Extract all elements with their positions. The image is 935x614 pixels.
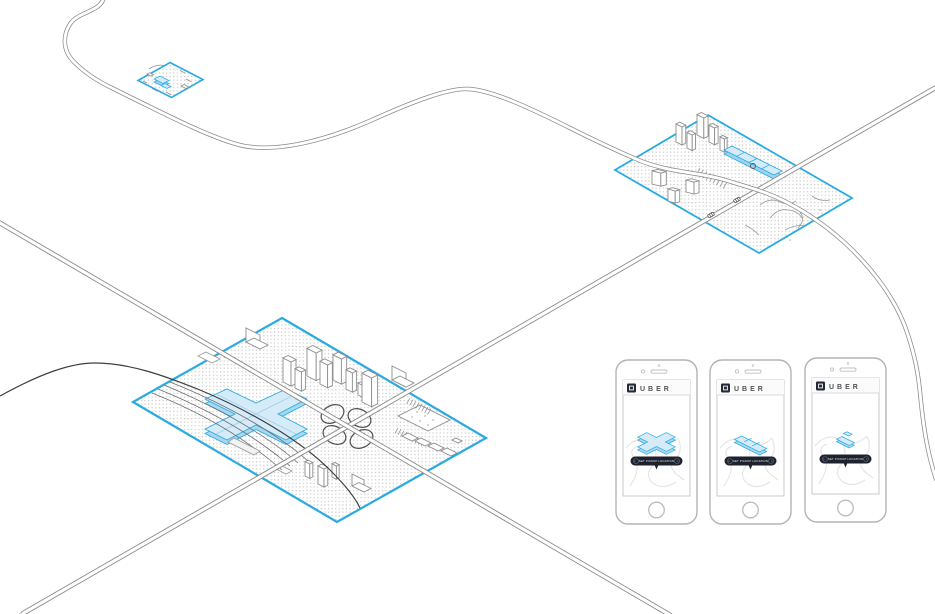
uber-logo-icon (721, 384, 730, 393)
uber-logo-icon (816, 382, 825, 391)
map-tile-city-large (133, 318, 486, 522)
phone-mockup-3: UBER ‹ › SET PICKUP LOCATION (805, 358, 886, 522)
road-network (0, 0, 935, 614)
home-button[interactable] (838, 500, 854, 516)
brand-wordmark: UBER (734, 386, 766, 393)
pickup-button-label: SET PICKUP LOCATION (828, 457, 863, 461)
uber-isometric-illustration: UBER ‹ › SET PICKUP LOCATION UBER (0, 0, 935, 614)
home-button[interactable] (649, 502, 665, 518)
uber-logo-icon (627, 384, 636, 393)
pickup-button-label: SET PICKUP LOCATION (639, 459, 674, 463)
phone-screen (717, 380, 784, 496)
phone-screen (812, 378, 879, 494)
home-button[interactable] (743, 502, 759, 518)
brand-wordmark: UBER (640, 386, 672, 393)
pickup-button-label: SET PICKUP LOCATION (733, 459, 768, 463)
map-tile-small (138, 63, 203, 98)
brand-wordmark: UBER (829, 384, 861, 391)
phone-mockup-2: UBER ‹ › SET PICKUP LOCATION (710, 360, 791, 524)
illustration-canvas: UBER ‹ › SET PICKUP LOCATION UBER (0, 0, 935, 614)
phone-mockup-1: UBER ‹ › SET PICKUP LOCATION (616, 360, 697, 524)
